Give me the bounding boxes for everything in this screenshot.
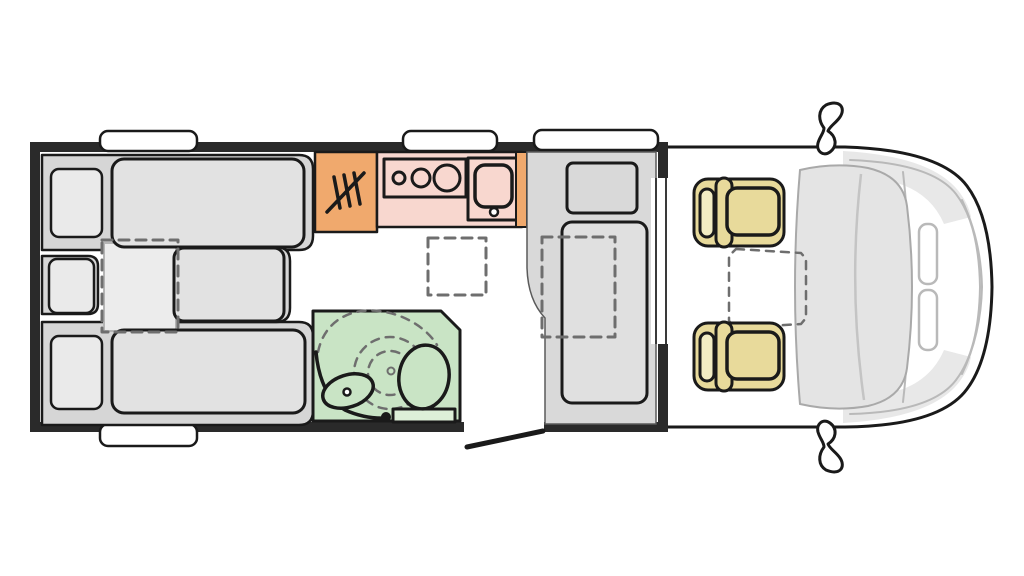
roof-window-rear-top — [100, 131, 197, 151]
sink-drain — [490, 208, 498, 216]
roof-window-dinette — [534, 130, 658, 150]
toilet-base — [393, 409, 455, 422]
pillow-middle — [49, 259, 94, 313]
bathroom — [313, 311, 460, 422]
side-mirror-bottom-icon — [818, 421, 843, 472]
roof-window-rear-bottom — [100, 424, 197, 446]
seat-lumbar — [700, 333, 714, 381]
hob-burner-large — [434, 165, 460, 191]
cab-walkthrough-opening — [651, 178, 672, 344]
seat-lumbar — [700, 189, 714, 237]
dinette-table — [562, 222, 647, 403]
floor-plan-svg — [0, 0, 1024, 576]
sink-basin — [475, 165, 512, 207]
hob-burner-small — [393, 172, 405, 184]
bed-mattress-middle — [174, 248, 284, 321]
kitchen-end-panel — [516, 152, 527, 227]
bed-mattress-top — [112, 159, 304, 247]
bed-extension-pad — [104, 243, 176, 331]
hob-burner-medium — [412, 169, 430, 187]
cab — [660, 103, 992, 472]
dinette — [527, 152, 656, 424]
pillow-top — [51, 169, 102, 237]
cab-seat-bottom — [694, 322, 784, 391]
headlight-top — [919, 224, 937, 284]
seat-cushion — [727, 188, 779, 235]
bed-mattress-bottom — [112, 330, 305, 413]
roof-window-kitchen — [403, 131, 497, 151]
dinette-backrest — [567, 163, 637, 213]
kitchen — [377, 152, 527, 227]
washbasin-tap-dot — [344, 389, 351, 396]
cab-seat-top — [694, 178, 784, 247]
counter-pivot-dot — [381, 412, 391, 422]
floor-plan-canvas — [0, 0, 1024, 576]
seat-cushion — [727, 332, 779, 379]
wardrobe — [315, 152, 377, 232]
headlight-bottom — [919, 290, 937, 350]
pillow-bottom — [51, 336, 102, 409]
rear-bedroom — [42, 155, 313, 425]
windshield — [795, 165, 912, 408]
